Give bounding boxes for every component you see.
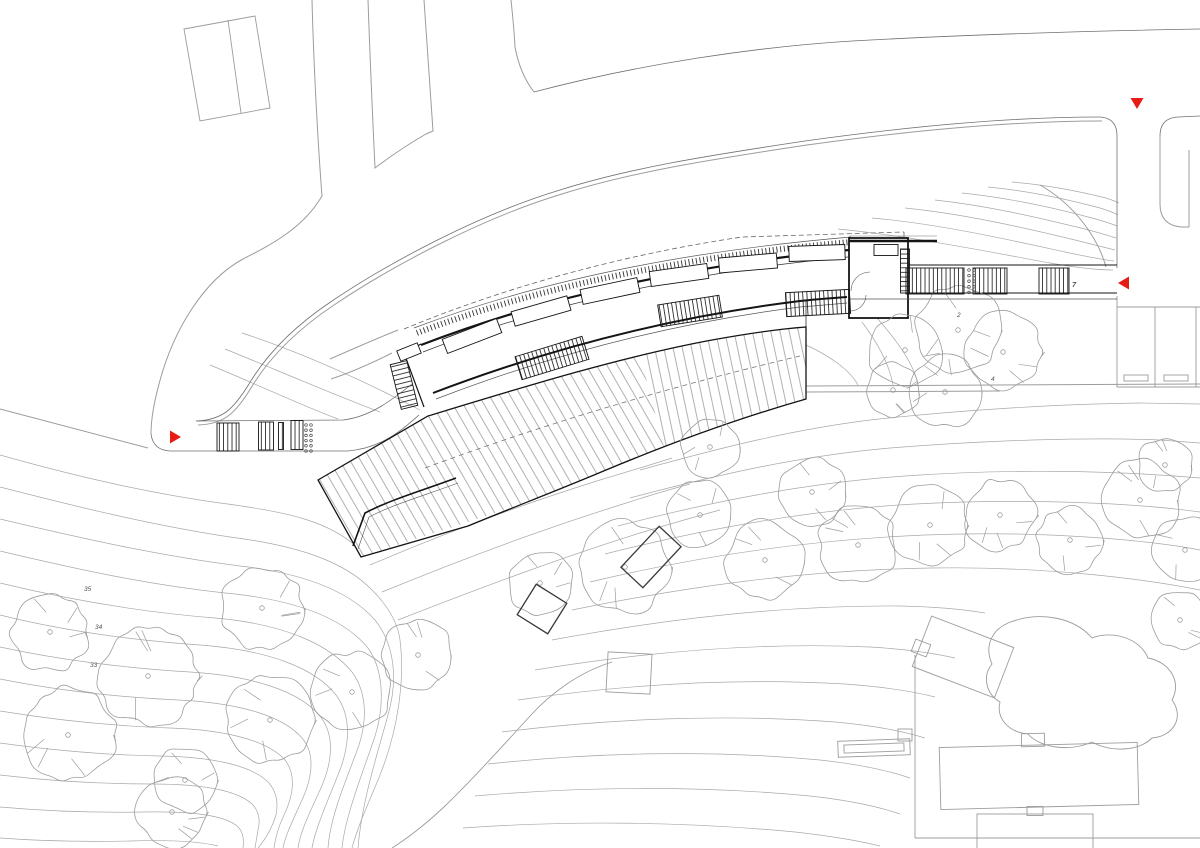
section-marker-right (1118, 277, 1129, 290)
tree-branch (189, 817, 205, 819)
tree-branch (315, 689, 332, 696)
tree-trunk (1183, 548, 1188, 553)
section-marker-left (170, 431, 181, 444)
tree-branch (695, 457, 699, 470)
tree-trunk (48, 630, 53, 635)
tree-branch (556, 583, 570, 587)
tree-trunk (1178, 618, 1183, 623)
tree-branch (776, 577, 792, 585)
tree-branch (925, 366, 938, 376)
tree-canopy (226, 676, 316, 764)
tree-branch (896, 404, 905, 413)
tree-branch (735, 539, 752, 545)
tree-branch (1162, 439, 1167, 451)
pavilion-outline (621, 526, 681, 587)
tree-branch (844, 511, 855, 525)
stair-flight (973, 268, 1007, 294)
deck-boards-east (640, 327, 806, 447)
stair-flight (279, 423, 284, 450)
stair-flight (390, 361, 418, 410)
vegetation-outline (986, 617, 1177, 749)
tree-branch (1010, 371, 1024, 383)
stair-flight (217, 423, 239, 451)
pavilion-outline (517, 584, 567, 634)
structure-outline (939, 742, 1139, 809)
skylight (789, 245, 845, 262)
tree-branch (353, 712, 363, 727)
tree-trunk (416, 653, 421, 658)
stair-flight (1039, 268, 1069, 294)
tree-branch (426, 671, 440, 680)
tree-branch (800, 463, 810, 475)
parking-outline (1117, 296, 1200, 387)
tree-branch (202, 773, 215, 780)
stair-flight (906, 268, 964, 294)
railing-post (968, 280, 971, 283)
tree-branch (615, 588, 616, 609)
structure-outline (1124, 375, 1148, 381)
tree-branch (38, 748, 48, 767)
tree-branch (69, 632, 86, 637)
tree-branch (72, 759, 86, 776)
tree-canopy (97, 627, 202, 727)
tree-canopy (915, 285, 1003, 373)
railing-post (968, 286, 971, 289)
tree-branch (1140, 520, 1149, 536)
tree-branch (280, 581, 289, 598)
tree-branch (68, 607, 78, 622)
tree-branch (323, 669, 340, 676)
tree-branch (749, 527, 761, 540)
railing-post (310, 424, 313, 427)
tree-branch (1188, 632, 1200, 638)
tree-branch (244, 689, 261, 700)
tree-trunk (956, 328, 961, 333)
tree-canopy (909, 354, 982, 427)
tree-branch (1063, 556, 1065, 571)
contour-elevation-label: 33 (90, 662, 98, 669)
tree-branch (949, 359, 952, 375)
spot-elevation-label: 4 (991, 376, 995, 383)
spot-elevation-label: 2 (956, 312, 961, 319)
tree-canopy (154, 749, 218, 814)
tree-canopy (724, 518, 805, 600)
tree-branch (554, 562, 562, 575)
skylight (874, 245, 898, 256)
tree-branch (1153, 476, 1155, 488)
structure-outline (838, 739, 911, 758)
tree-trunk (350, 690, 355, 695)
property-line (915, 655, 1200, 838)
tree-trunk (1163, 463, 1168, 468)
section-marker-top (1131, 98, 1144, 109)
structure-outline (911, 639, 931, 657)
railing-post (305, 445, 308, 448)
railing-post (310, 434, 313, 437)
tree-branch (417, 622, 422, 638)
stair-flight (785, 289, 850, 316)
tree-branch (896, 404, 905, 414)
railing-post (305, 434, 308, 437)
tree-branch (913, 393, 927, 402)
tree-branch (1016, 522, 1032, 523)
tree-trunk (903, 348, 908, 353)
tree-branch (183, 826, 198, 832)
tree-canopy (222, 568, 305, 649)
tree-canopy (509, 553, 572, 616)
contour-elevation-label: 35 (84, 586, 92, 593)
structure-outline (844, 743, 904, 753)
railing-post (305, 429, 308, 432)
railing-post (305, 424, 308, 427)
tree-canopy (381, 619, 451, 690)
tree-branch (1086, 545, 1101, 547)
tree-canopy (9, 593, 89, 670)
tree-canopy (778, 457, 846, 526)
tree-trunk (1001, 350, 1006, 355)
tree-branch (971, 348, 989, 356)
tree-branch (926, 339, 938, 355)
tree-trunk (856, 543, 861, 548)
existing-building-outline (184, 16, 270, 121)
tree-branch (1118, 471, 1133, 482)
tree-trunk (538, 581, 543, 586)
tree-trunk (708, 445, 713, 450)
railing-post (305, 439, 308, 442)
tree-canopy (1151, 593, 1200, 650)
tree-branch (833, 519, 849, 528)
tree-trunk (66, 733, 71, 738)
tree-trunk (998, 513, 1003, 518)
site-plan-sheet: 353433247 (0, 0, 1200, 848)
stair-flight (259, 422, 274, 450)
tree-branch (699, 532, 706, 546)
tree-branch (407, 624, 416, 638)
structure-outline (977, 814, 1093, 848)
railing-post (310, 429, 313, 432)
tree-branch (600, 581, 607, 601)
site-plan-drawing: 353433247 (0, 0, 1200, 848)
tree-branch (973, 330, 990, 336)
tree-branch (942, 491, 944, 509)
tree-canopy (24, 685, 117, 781)
tree-branch (829, 481, 841, 490)
tree-branch (1158, 535, 1173, 538)
contour-elevation-label: 34 (95, 624, 103, 631)
tree-trunk (268, 718, 273, 723)
skylight (397, 343, 422, 361)
tree-trunk (928, 523, 933, 528)
tree-trunk (1138, 498, 1143, 503)
tree-branch (712, 488, 716, 503)
tree-branch (1191, 630, 1200, 633)
tree-branch (683, 447, 695, 454)
tree-branch (982, 527, 987, 543)
tree-branch (172, 753, 182, 764)
tree-branch (1057, 512, 1067, 524)
tree-trunk (763, 558, 768, 563)
tree-branch (230, 719, 248, 728)
stair-flight (291, 421, 303, 450)
tree-branch (179, 829, 192, 839)
tree-canopy (818, 506, 895, 582)
tree-branch (937, 544, 951, 556)
tree-branch (1155, 441, 1163, 451)
tree-branch (1019, 364, 1037, 367)
tree-branch (997, 533, 1003, 548)
tree-branch (136, 632, 148, 651)
railing-post (310, 445, 313, 448)
railing-post (968, 269, 971, 272)
tree-branch (825, 528, 843, 532)
structure-outline (1164, 375, 1188, 381)
railing-post (968, 274, 971, 277)
tree-branch (263, 741, 267, 761)
tree-trunk (943, 390, 948, 395)
tree-branch (34, 599, 46, 613)
tree-branch (1164, 597, 1175, 606)
railing-post (310, 439, 313, 442)
tree-canopy (1036, 505, 1104, 574)
tree-branch (28, 739, 45, 753)
tree-trunk (1068, 538, 1073, 543)
tree-canopy (867, 362, 920, 418)
tree-trunk (810, 490, 815, 495)
tree-branch (910, 315, 912, 332)
tree-branch (677, 494, 691, 501)
contour-lines-layer (0, 182, 1200, 848)
stair-number-label: 7 (1072, 280, 1077, 289)
tree-trunk (146, 674, 151, 679)
tree-canopy (888, 485, 969, 566)
tree-trunk (260, 606, 265, 611)
tree-branch (816, 509, 826, 520)
tree-canopy (1139, 439, 1192, 491)
tree-branch (1129, 465, 1139, 480)
tree-branch (527, 556, 537, 567)
structure-outline (606, 652, 652, 694)
